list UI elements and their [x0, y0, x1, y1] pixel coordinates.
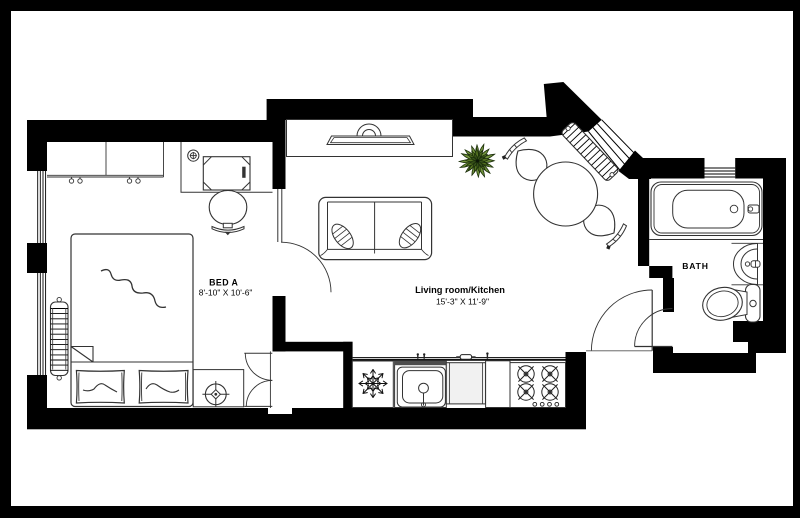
svg-text:Living room/Kitchen: Living room/Kitchen	[415, 285, 505, 295]
svg-text:BATH: BATH	[682, 261, 708, 271]
svg-text:8'-10" X 10'-6": 8'-10" X 10'-6"	[199, 287, 253, 297]
svg-text:15'-3" X 11'-9": 15'-3" X 11'-9"	[436, 296, 489, 306]
svg-text:BED A: BED A	[209, 278, 238, 288]
